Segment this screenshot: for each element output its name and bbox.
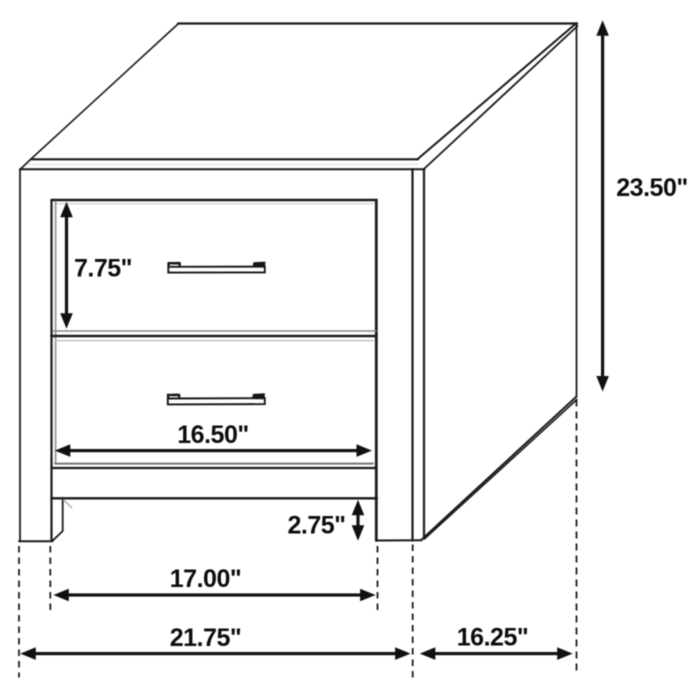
svg-text:17.00": 17.00" <box>170 565 241 593</box>
svg-text:21.75": 21.75" <box>170 624 241 652</box>
svg-text:2.75": 2.75" <box>287 512 345 540</box>
svg-text:16.25": 16.25" <box>457 624 528 652</box>
svg-text:16.50": 16.50" <box>177 421 248 449</box>
svg-text:23.50": 23.50" <box>616 174 687 202</box>
svg-text:7.75": 7.75" <box>74 255 132 283</box>
